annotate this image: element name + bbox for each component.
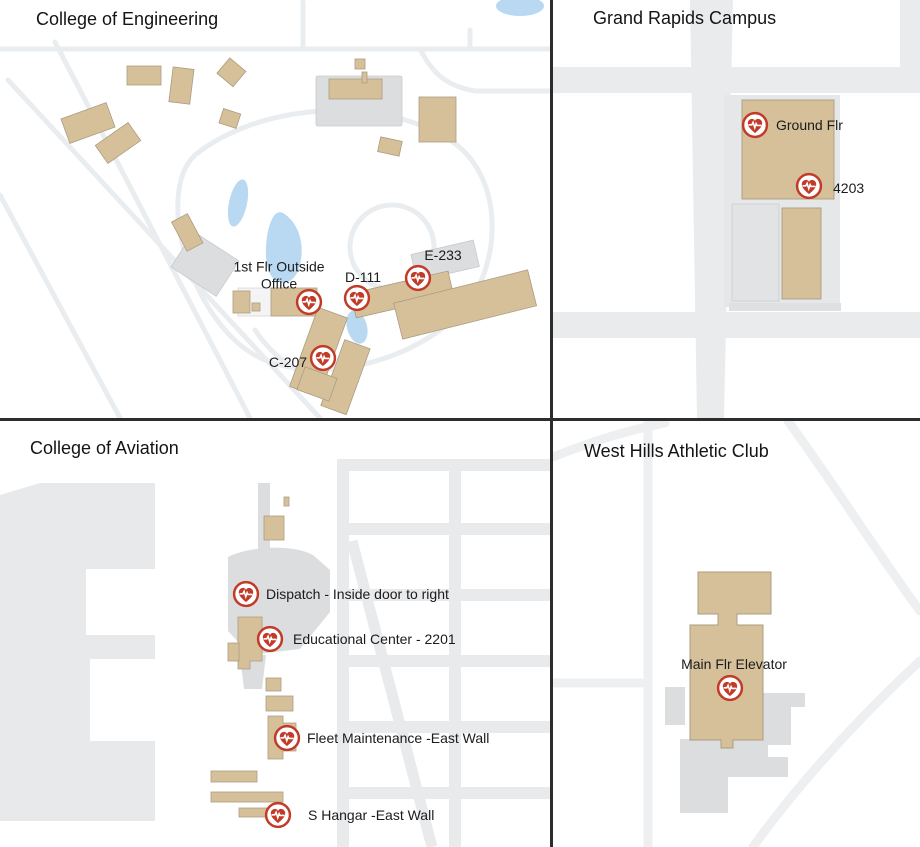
aed-heart-icon (296, 289, 323, 316)
grand-rapids-map-svg (553, 0, 920, 418)
aed-heart-icon (310, 345, 337, 372)
aed-marker[interactable] (405, 265, 432, 292)
quadrant-west-hills-athletic-club: West Hills Athletic Club Main Flr Elevat… (553, 421, 920, 847)
marker-label: Fleet Maintenance -East Wall (307, 730, 489, 746)
aed-marker[interactable] (274, 725, 301, 752)
aed-marker[interactable] (265, 802, 292, 829)
aed-heart-icon (405, 265, 432, 292)
quadrant-college-of-aviation: College of Aviation Dispatch - Inside do… (0, 421, 551, 847)
aed-heart-icon (717, 675, 744, 702)
aed-marker[interactable] (344, 285, 371, 312)
gray-buildings-layer (732, 204, 779, 301)
aed-marker[interactable] (296, 289, 323, 316)
tan-buildings-layer (211, 497, 296, 817)
horizontal-divider (0, 418, 920, 421)
marker-label: Dispatch - Inside door to right (266, 586, 449, 602)
marker-label: C-207 (269, 354, 307, 370)
marker-label: Ground Flr (776, 117, 843, 133)
aed-heart-icon (742, 112, 769, 139)
aed-marker[interactable] (233, 581, 260, 608)
west-hills-map-svg (553, 421, 920, 847)
marker-label: 4203 (833, 180, 864, 196)
aed-heart-icon (257, 626, 284, 653)
quadrant-title: College of Aviation (30, 438, 179, 459)
aed-locations-map: College of Engineering 1st Flr Outside O… (0, 0, 920, 847)
aed-marker[interactable] (796, 173, 823, 200)
marker-label: D-111 (345, 269, 381, 285)
city-grid-layer (337, 459, 551, 847)
aed-marker[interactable] (717, 675, 744, 702)
quadrant-title: Grand Rapids Campus (593, 8, 776, 29)
aed-marker[interactable] (310, 345, 337, 372)
marker-label: Main Flr Elevator (681, 656, 787, 672)
quadrant-title: West Hills Athletic Club (584, 441, 769, 462)
aed-marker[interactable] (742, 112, 769, 139)
aed-heart-icon (344, 285, 371, 312)
vertical-divider (550, 0, 553, 847)
aed-heart-icon (274, 725, 301, 752)
aed-marker[interactable] (257, 626, 284, 653)
quadrant-college-of-engineering: College of Engineering 1st Flr Outside O… (0, 0, 551, 418)
marker-label: E-233 (424, 247, 461, 263)
marker-label: Educational Center - 2201 (293, 631, 456, 647)
marker-label: S Hangar -East Wall (308, 807, 434, 823)
aed-heart-icon (233, 581, 260, 608)
marker-label: 1st Flr Outside Office (229, 258, 329, 291)
aed-heart-icon (265, 802, 292, 829)
quadrant-title: College of Engineering (36, 9, 218, 30)
quadrant-grand-rapids-campus: Grand Rapids Campus Ground Flr 4203 (553, 0, 920, 418)
aed-heart-icon (796, 173, 823, 200)
